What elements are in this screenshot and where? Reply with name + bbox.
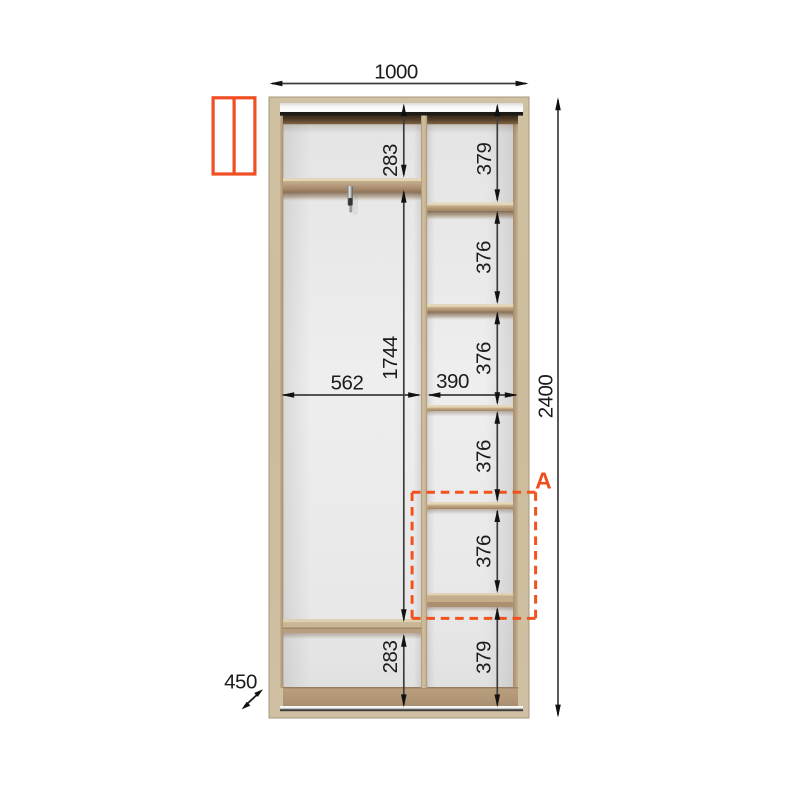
- svg-text:2400: 2400: [535, 375, 558, 419]
- svg-text:283: 283: [379, 144, 402, 177]
- svg-text:283: 283: [379, 641, 402, 674]
- svg-text:379: 379: [473, 143, 496, 176]
- svg-text:450: 450: [224, 671, 257, 694]
- svg-text:376: 376: [473, 241, 496, 274]
- svg-text:390: 390: [436, 370, 469, 393]
- svg-text:376: 376: [473, 440, 496, 473]
- svg-text:379: 379: [473, 641, 496, 674]
- svg-text:376: 376: [473, 535, 496, 568]
- svg-text:1744: 1744: [379, 336, 402, 380]
- svg-text:1000: 1000: [374, 61, 418, 84]
- svg-text:A: A: [535, 468, 552, 494]
- svg-text:562: 562: [331, 372, 364, 395]
- svg-text:376: 376: [473, 342, 496, 375]
